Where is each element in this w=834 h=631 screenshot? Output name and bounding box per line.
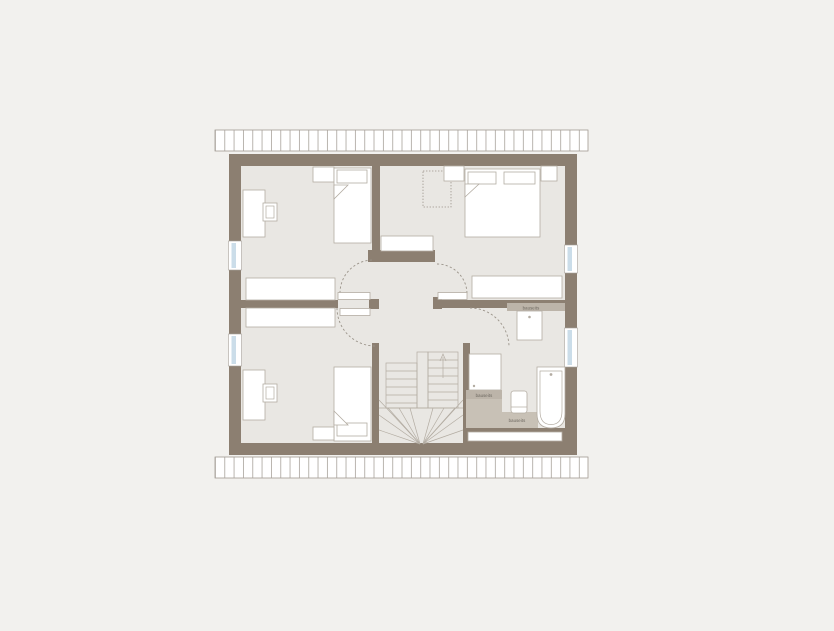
label-bauseits-shower: bauseits [476,393,493,398]
window-left-top [229,241,242,270]
window-right-bottom [565,328,578,367]
nightstand [313,167,334,182]
wc-toilet [511,391,527,413]
door-leaf-bottom-left [340,309,370,316]
door-leaf-master [438,293,467,300]
floor-plan-canvas: bauseits bauseits bauseits [0,0,834,626]
washbasin [517,311,542,340]
wall-hall-north [380,250,435,262]
shower [469,354,501,390]
wardrobe [246,308,335,327]
washbasin-tap-icon [528,316,531,319]
knee-wall-niche [468,432,562,441]
wardrobe [472,276,562,298]
bathtub [537,367,565,428]
hatch-strip-top [215,130,588,151]
pillow-right [504,172,535,184]
nightstand-left [444,166,464,181]
pillow-left [468,172,496,184]
wall-hall-south-left [241,300,338,308]
wall-stair-left [372,343,379,443]
nightstand-right [541,166,557,181]
bathtub-tap-icon [550,373,553,376]
desk [243,190,265,237]
shower-drain-icon [473,385,475,387]
roof-eaves-bottom [215,457,588,478]
door-leaf-top-left [338,293,370,300]
roof-eaves-top [215,130,588,151]
pillow [337,170,367,183]
window-right-top [565,245,578,273]
door-hinge-post [369,299,379,309]
desk [243,370,265,420]
sideboard [381,236,433,251]
wardrobe [246,278,335,300]
wall-center-top [372,166,380,250]
hatch-strip-bottom [215,457,588,478]
label-bauseits-floor: bauseits [509,418,526,423]
nightstand [313,427,334,440]
label-bauseits-vanity: bauseits [523,306,540,311]
hallway [381,236,433,251]
window-left-bottom [229,334,242,366]
